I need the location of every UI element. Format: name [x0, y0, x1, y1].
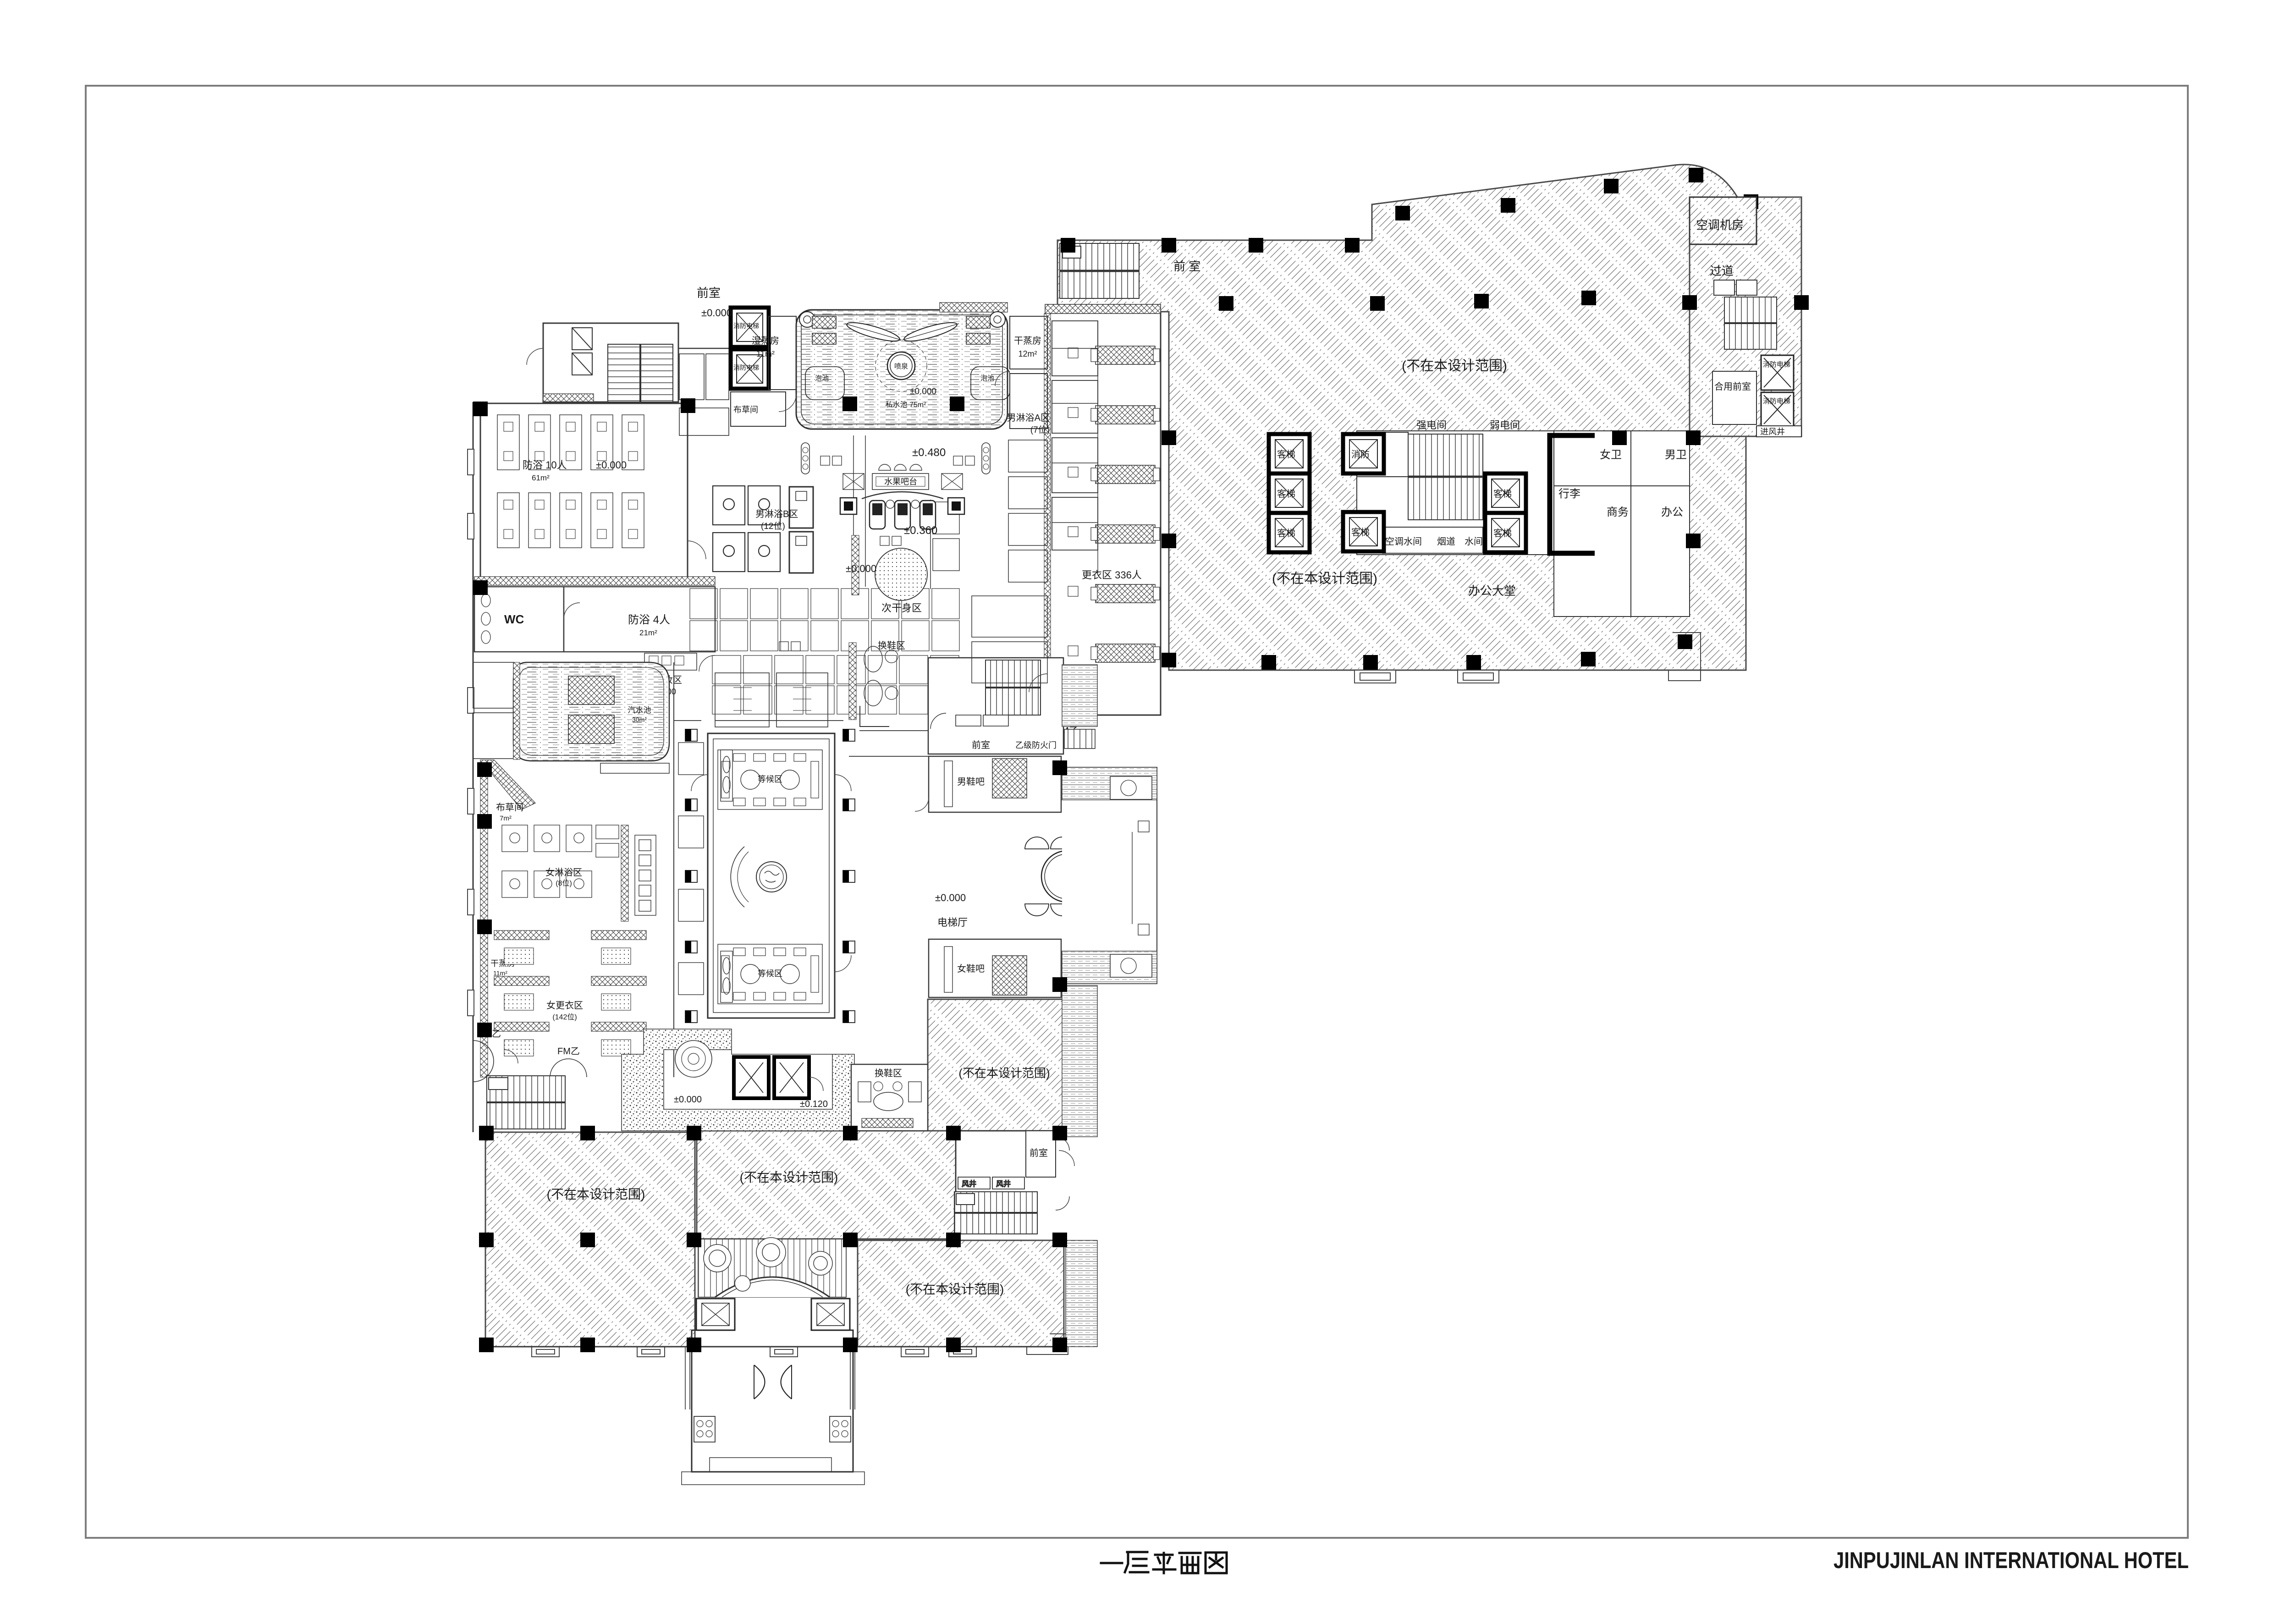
svg-text:前室: 前室 [972, 740, 990, 750]
svg-text:过道: 过道 [1710, 264, 1734, 278]
svg-text:前室: 前室 [1030, 1148, 1048, 1158]
svg-text:换鞋区: 换鞋区 [878, 640, 905, 651]
svg-text:女卫: 女卫 [1600, 449, 1622, 461]
svg-text:11m²: 11m² [756, 349, 775, 358]
svg-text:私水池 75m²: 私水池 75m² [886, 401, 927, 409]
svg-text:11m²: 11m² [493, 969, 507, 977]
svg-text:干蒸房: 干蒸房 [1014, 336, 1041, 346]
svg-text:客梯: 客梯 [1277, 528, 1295, 539]
svg-text:客梯: 客梯 [1351, 527, 1370, 538]
svg-text:客梯: 客梯 [1277, 489, 1295, 499]
svg-text:水间: 水间 [1465, 536, 1483, 547]
svg-text:±0.360: ±0.360 [904, 524, 937, 537]
svg-text:汽水池: 汽水池 [628, 706, 651, 715]
svg-text:±0.000: ±0.000 [674, 1095, 702, 1105]
svg-text:±0.120: ±0.120 [800, 1099, 828, 1109]
svg-text:±0.000: ±0.000 [910, 387, 936, 396]
svg-text:女淋浴区: 女淋浴区 [545, 867, 582, 878]
svg-text:12m²: 12m² [1018, 349, 1037, 358]
svg-text:商务: 商务 [1607, 506, 1629, 518]
svg-text:女更衣区: 女更衣区 [546, 1000, 583, 1011]
svg-text:客梯: 客梯 [1493, 528, 1512, 539]
svg-text:烟道: 烟道 [1437, 536, 1455, 547]
svg-text:合用前室: 合用前室 [1714, 381, 1751, 392]
svg-text:61m²: 61m² [532, 473, 550, 482]
svg-text:(12位): (12位) [761, 521, 785, 531]
svg-text:行李: 行李 [1558, 488, 1580, 500]
svg-text:水果吧台: 水果吧台 [884, 477, 917, 486]
svg-text:办公大堂: 办公大堂 [1468, 584, 1516, 598]
svg-text:FM乙: FM乙 [557, 1046, 580, 1057]
svg-text:30m²: 30m² [632, 716, 647, 723]
svg-text:防浴 4人: 防浴 4人 [628, 614, 670, 626]
svg-text:泡池: 泡池 [980, 374, 994, 382]
svg-text:(8位): (8位) [556, 879, 572, 887]
svg-text:JINPUJINLAN INTERNATIONAL HOTE: JINPUJINLAN INTERNATIONAL HOTEL [1834, 1547, 2189, 1573]
svg-text:湿蒸房: 湿蒸房 [752, 336, 779, 346]
svg-text:布草间: 布草间 [496, 802, 523, 813]
svg-text:(142位): (142位) [552, 1013, 577, 1021]
svg-text:进风井: 进风井 [1760, 427, 1785, 436]
svg-text:(不在本设计范围): (不在本设计范围) [547, 1187, 645, 1201]
svg-text:男淋浴B区: 男淋浴B区 [755, 509, 798, 519]
svg-text:(不在本设计范围): (不在本设计范围) [1272, 571, 1377, 586]
svg-text:布草间: 布草间 [733, 405, 758, 414]
svg-text:±0.000: ±0.000 [596, 459, 627, 471]
svg-text:±0.000: ±0.000 [701, 307, 732, 319]
svg-text:消防电梯: 消防电梯 [733, 364, 759, 371]
svg-text:泡池: 泡池 [815, 374, 829, 382]
svg-text:(7位): (7位) [1030, 425, 1050, 435]
svg-text:客梯: 客梯 [1493, 489, 1512, 499]
svg-text:±0.480: ±0.480 [912, 446, 946, 459]
svg-text:消防: 消防 [1351, 449, 1370, 460]
svg-text:±0.000: ±0.000 [846, 563, 876, 574]
svg-text:消防电梯: 消防电梯 [1763, 361, 1790, 369]
svg-text:等候区: 等候区 [758, 775, 782, 784]
svg-text:空调机房: 空调机房 [1696, 218, 1744, 232]
svg-text:男淋浴A区: 男淋浴A区 [1007, 413, 1050, 423]
svg-text:乙级防火门: 乙级防火门 [1015, 741, 1057, 750]
svg-text:21m²: 21m² [639, 628, 657, 637]
svg-text:等候区: 等候区 [758, 969, 782, 978]
svg-text:风井: 风井 [996, 1180, 1011, 1188]
svg-text:强电间: 强电间 [1416, 419, 1447, 431]
svg-text:风井: 风井 [962, 1180, 976, 1188]
svg-text:男卫: 男卫 [1665, 449, 1687, 461]
svg-text:前室: 前室 [697, 286, 721, 300]
svg-text:(不在本设计范围): (不在本设计范围) [906, 1282, 1004, 1296]
svg-text:(不在本设计范围): (不在本设计范围) [958, 1066, 1050, 1080]
svg-text:男鞋吧: 男鞋吧 [957, 776, 985, 787]
svg-text:±0.000: ±0.000 [935, 892, 966, 903]
svg-text:前 室: 前 室 [1173, 259, 1200, 273]
svg-text:防浴 10人: 防浴 10人 [523, 459, 567, 471]
svg-text:电梯厅: 电梯厅 [937, 917, 968, 928]
svg-text:空调水间: 空调水间 [1385, 536, 1422, 547]
svg-text:(不在本设计范围): (不在本设计范围) [1402, 358, 1507, 374]
svg-text:WC: WC [504, 612, 524, 626]
svg-text:消防电梯: 消防电梯 [1763, 397, 1790, 405]
svg-text:弱电间: 弱电间 [1490, 419, 1520, 431]
svg-text:喷泉: 喷泉 [894, 363, 908, 370]
svg-text:女鞋吧: 女鞋吧 [957, 963, 985, 974]
svg-text:客梯: 客梯 [1277, 449, 1295, 460]
svg-text:7m²: 7m² [500, 815, 512, 822]
svg-text:更衣区 336人: 更衣区 336人 [1082, 569, 1142, 581]
svg-text:换鞋区: 换鞋区 [875, 1068, 902, 1079]
svg-text:(不在本设计范围): (不在本设计范围) [740, 1170, 838, 1184]
svg-text:办公: 办公 [1661, 506, 1683, 518]
svg-text:次干身区: 次干身区 [881, 602, 922, 614]
svg-text:消防电梯: 消防电梯 [733, 322, 759, 330]
